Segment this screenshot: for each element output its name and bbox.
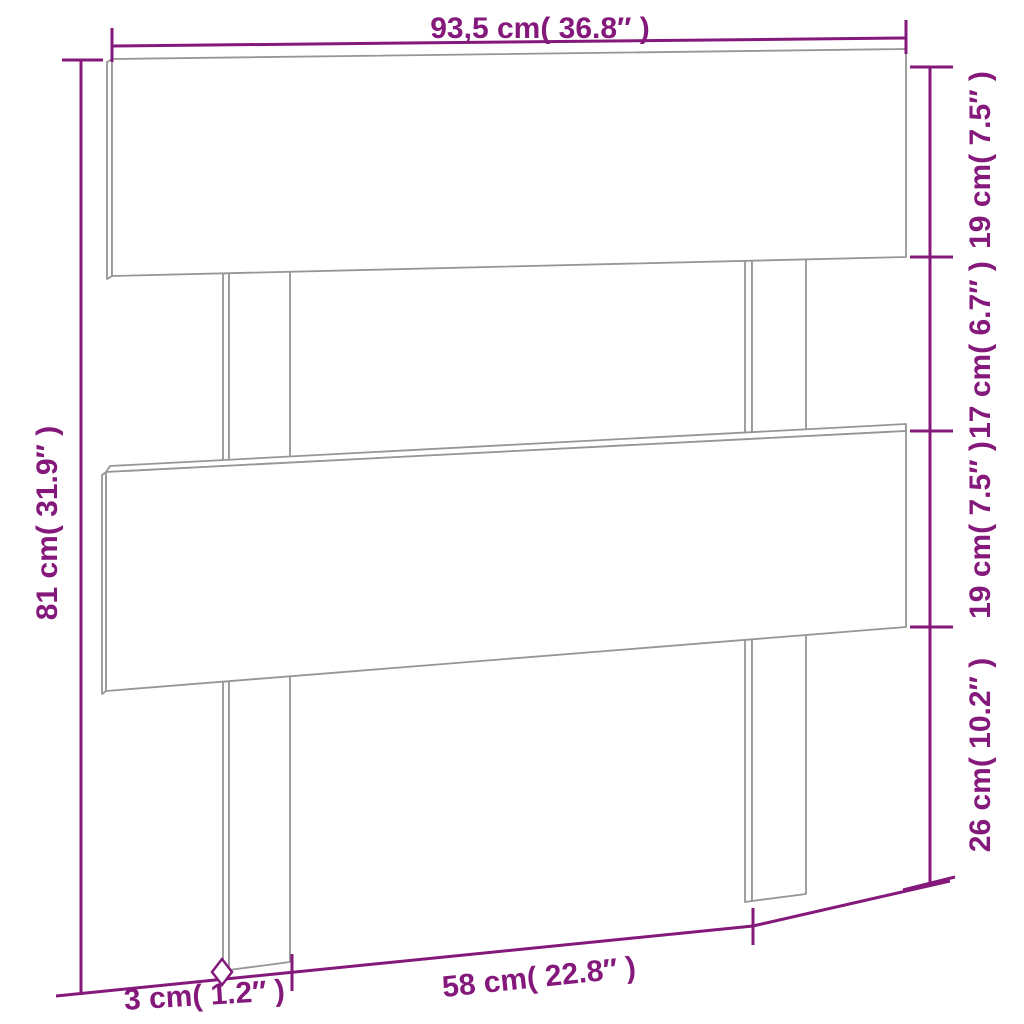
right-post-lower bbox=[752, 634, 806, 901]
headboard-diagram: 93,5 cm( 36.8″ ) 81 cm( 31.9″ ) 19 cm( 7… bbox=[0, 0, 1024, 1024]
right-post-lower-edge bbox=[745, 639, 752, 902]
right-segment-label-1: 19 cm( 7.5″ ) bbox=[964, 71, 997, 249]
top-width-label: 93,5 cm( 36.8″ ) bbox=[430, 12, 650, 45]
leg-thickness-label: 3 cm( 1.2″ ) bbox=[123, 974, 286, 1017]
left-height-label: 81 cm( 31.9″ ) bbox=[31, 426, 64, 620]
right-segment-label-4: 26 cm( 10.2″ ) bbox=[964, 658, 997, 852]
headboard-drawing bbox=[102, 49, 906, 971]
top-board bbox=[112, 49, 906, 276]
right-segment-label-2: 17 cm( 6.7″ ) bbox=[964, 261, 997, 439]
left-post-upper bbox=[229, 270, 290, 465]
right-post-upper-edge bbox=[745, 260, 752, 439]
bottom-span-label: 58 cm( 22.8″ ) bbox=[441, 951, 638, 1004]
right-post-upper bbox=[752, 258, 806, 438]
diagram-canvas: 93,5 cm( 36.8″ ) 81 cm( 31.9″ ) 19 cm( 7… bbox=[0, 0, 1024, 1024]
left-post-lower bbox=[229, 676, 290, 970]
right-segment-label-3: 19 cm( 7.5″ ) bbox=[964, 441, 997, 619]
